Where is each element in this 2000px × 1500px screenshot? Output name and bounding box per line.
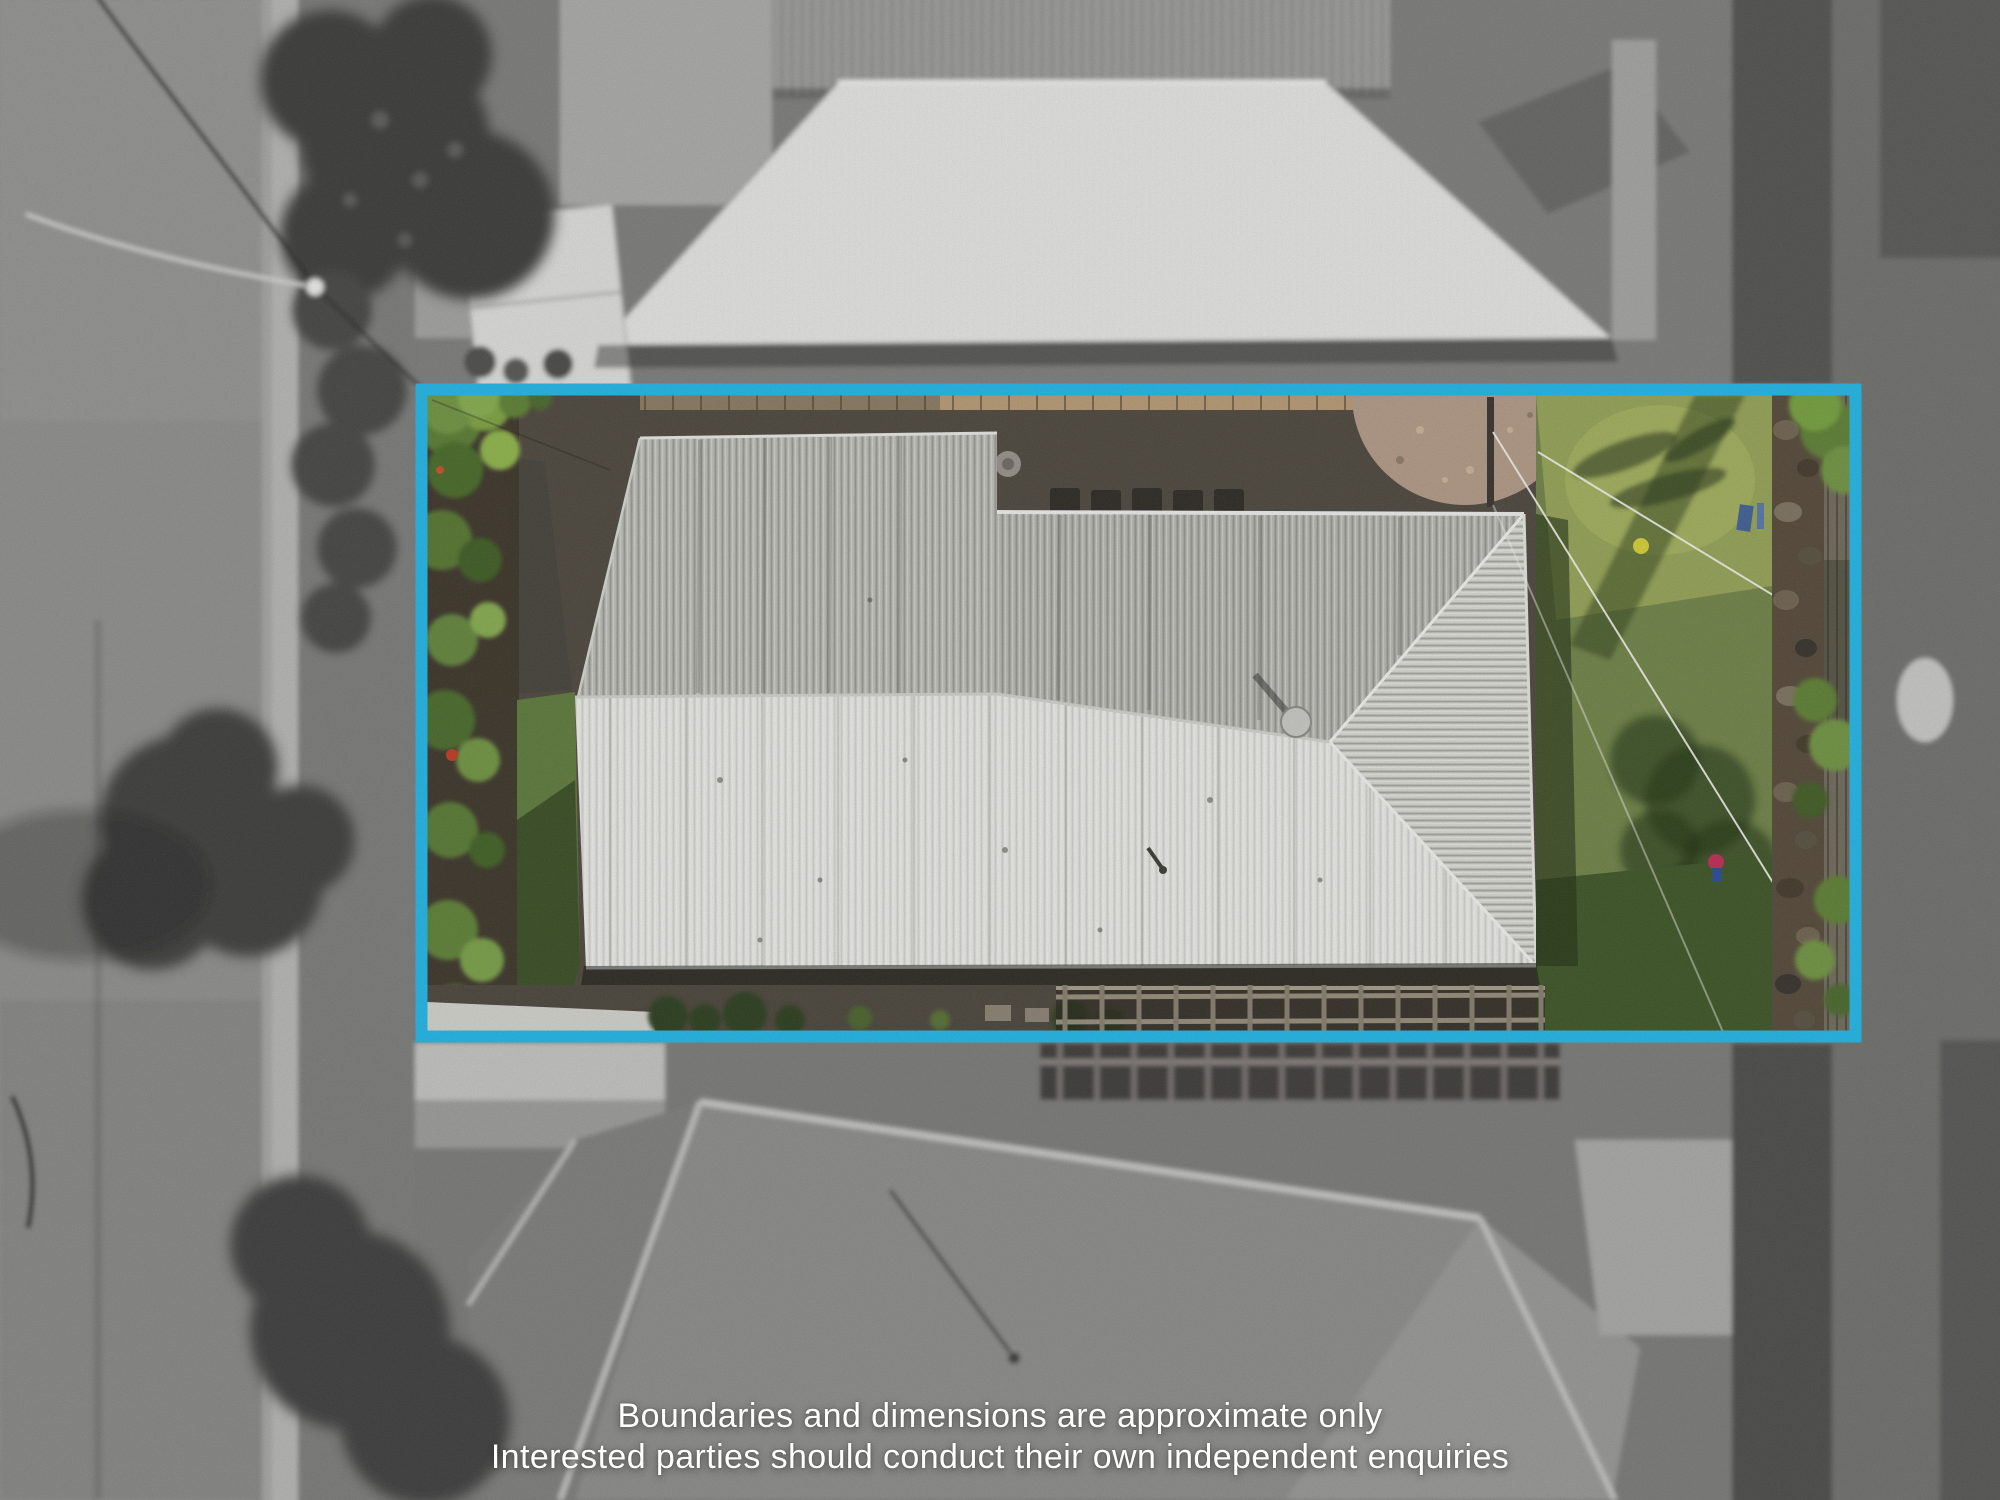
disclaimer-line-2: Interested parties should conduct their … <box>0 1437 2000 1478</box>
film-grain-light <box>0 0 2000 1500</box>
aerial-photo <box>0 0 2000 1500</box>
disclaimer-text: Boundaries and dimensions are approximat… <box>0 1396 2000 1478</box>
disclaimer-line-1: Boundaries and dimensions are approximat… <box>0 1396 2000 1437</box>
